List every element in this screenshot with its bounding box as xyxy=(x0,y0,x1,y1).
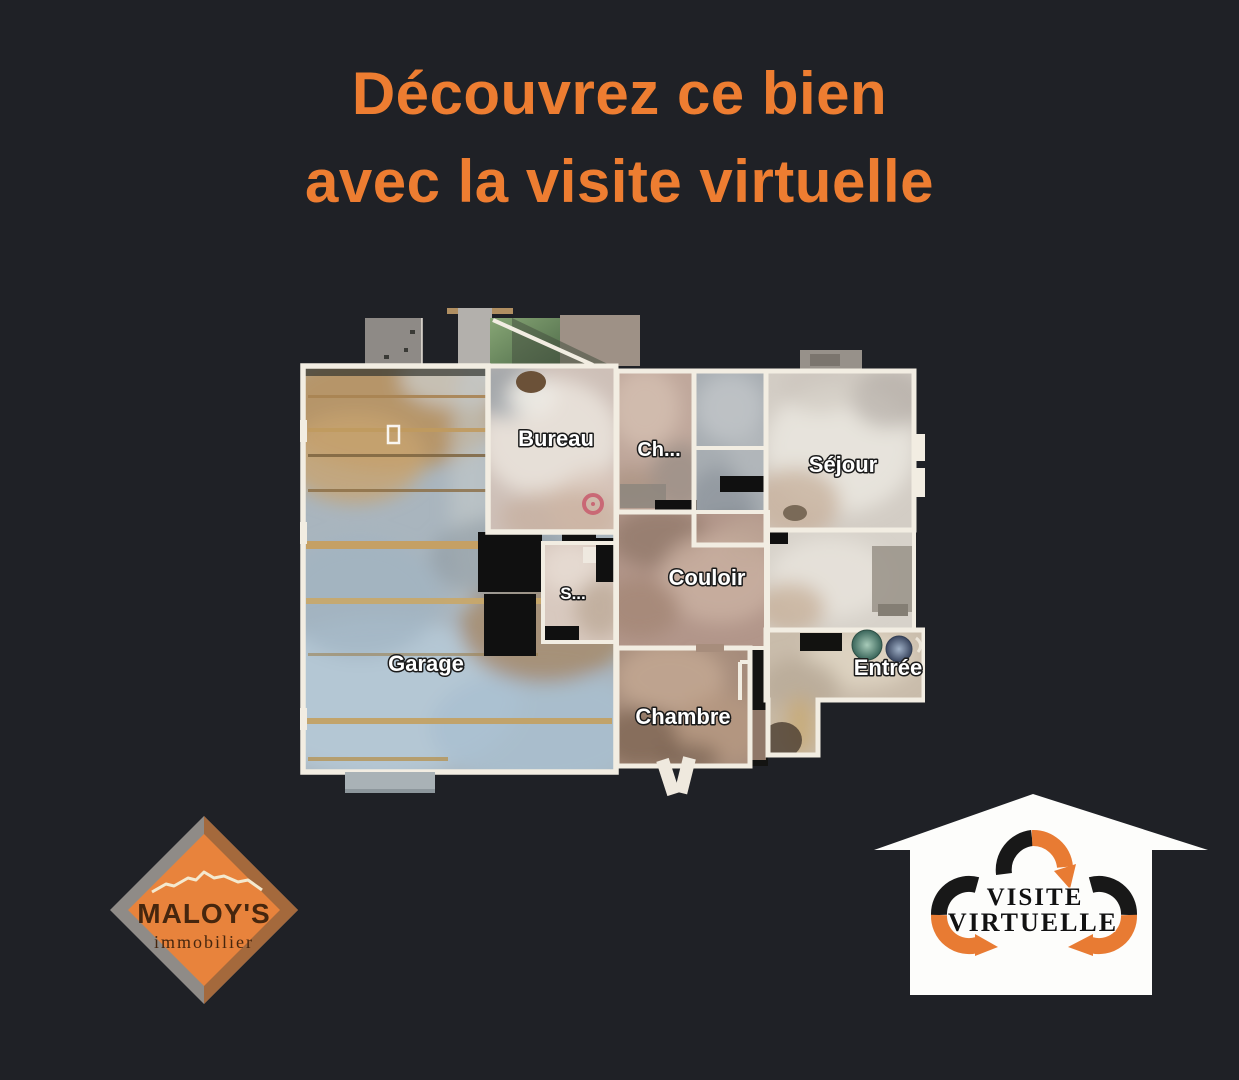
room-label-bureau: Bureau xyxy=(518,426,594,451)
headline-line-1: Découvrez ce bien xyxy=(0,50,1239,138)
room-label-chambre-2: Ch... xyxy=(637,439,680,461)
virtual-tour-badge: VISITE VIRTUELLE xyxy=(872,788,1212,1003)
room-label-couloir: Couloir xyxy=(669,565,746,590)
badge-line-2: VIRTUELLE xyxy=(948,908,1118,937)
floor-plan: Garage Bureau Ch... Séjour Couloir S... … xyxy=(300,308,925,796)
doorway-gap xyxy=(696,644,724,652)
room-label-entree: Entrée xyxy=(854,655,922,680)
agency-logo: MALOY'S immobilier xyxy=(104,810,304,1010)
agency-tagline: immobilier xyxy=(154,932,254,952)
ceiling-object xyxy=(516,371,546,393)
room-sejour xyxy=(750,363,925,538)
headline: Découvrez ce bien avec la visite virtuel… xyxy=(0,50,1239,226)
hall-floor-bit xyxy=(752,710,766,760)
exterior-tab xyxy=(345,772,435,793)
room-sejour-lower xyxy=(755,530,914,633)
room-label-chambre: Chambre xyxy=(635,704,730,729)
headline-line-2: avec la visite virtuelle xyxy=(0,138,1239,226)
poster: Découvrez ce bien avec la visite virtuel… xyxy=(0,0,1239,1080)
room-label-garage: Garage xyxy=(388,651,464,676)
agency-name: MALOY'S xyxy=(137,898,270,929)
room-label-sejour: Séjour xyxy=(809,452,878,477)
carport-roof xyxy=(365,308,640,370)
badge-line-1: VISITE xyxy=(987,884,1084,911)
room-label-salle-eau: S... xyxy=(560,584,586,603)
chimney-tab-shadow xyxy=(810,354,840,366)
